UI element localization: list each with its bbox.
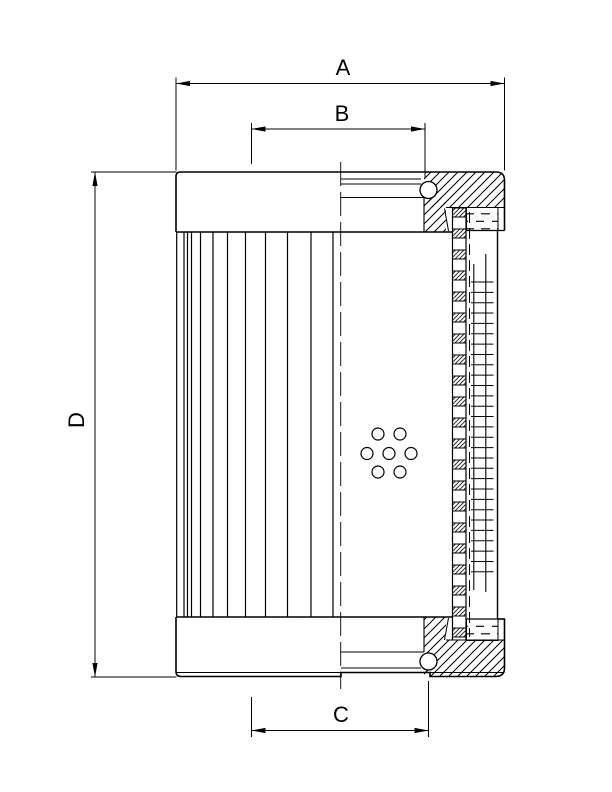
dimension-label-b: B	[335, 101, 350, 126]
dimension-label-d: D	[64, 412, 89, 428]
arrowhead-left	[176, 81, 190, 86]
support-mesh	[471, 231, 498, 620]
core-tube	[453, 208, 470, 640]
drawing-sheet: A B C D	[0, 0, 612, 792]
dimension-b: B	[252, 101, 426, 178]
pleated-filter-media	[177, 232, 333, 617]
o-ring-top	[420, 182, 437, 199]
arrowhead-bottom	[92, 663, 97, 677]
arrowhead-right	[491, 81, 505, 86]
dimension-label-a: A	[336, 55, 351, 80]
arrowhead-top	[92, 172, 97, 186]
arrowhead-right	[411, 126, 425, 131]
arrowhead-left	[252, 126, 266, 131]
o-ring-bottom	[420, 653, 437, 670]
core-tube-slots	[453, 208, 467, 637]
dimension-d: D	[64, 172, 177, 677]
arrowhead-right	[415, 728, 429, 733]
dimension-c: C	[252, 681, 429, 737]
technical-drawing: A B C D	[0, 0, 612, 792]
mesh-grid-lines	[471, 282, 494, 572]
arrowhead-left	[252, 728, 266, 733]
perforation-holes	[361, 428, 417, 478]
dimension-label-c: C	[333, 702, 349, 727]
gasket-top	[467, 208, 499, 231]
gasket-bottom	[467, 619, 499, 641]
